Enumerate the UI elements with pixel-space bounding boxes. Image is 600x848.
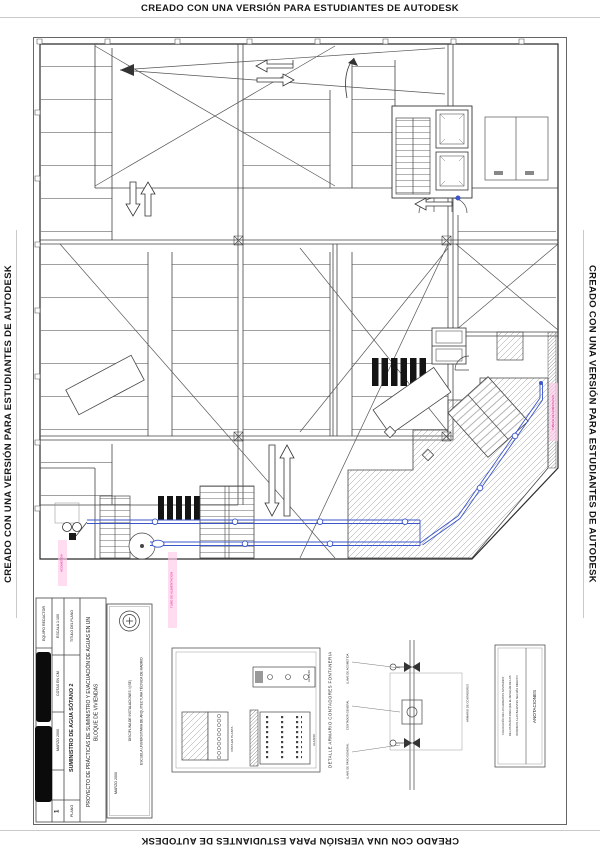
redacted-name xyxy=(35,726,52,802)
valvula-label-paso: LLAVE DE PASO GENERAL xyxy=(344,740,352,782)
leader-lines xyxy=(352,662,400,752)
valvula-label-acometida: LLAVE DE ACOMETIDA xyxy=(344,648,352,690)
redacted-name xyxy=(36,652,51,722)
escuela-nombre: ESCUELA UNIVERSITARIA DE ARQUITECTURA TÉ… xyxy=(136,608,147,814)
anotaciones-linea: INODOROS A LAS BAJANTES SEA MÁS DIRECTO xyxy=(514,652,521,760)
titulo-plano: SUMINISTRO DE AGUA SÓTANO 2 xyxy=(66,658,79,798)
fecha-value: MARZO 2000 xyxy=(53,714,63,767)
proyecto-titulo: PROYECTO DE PRÁCTICAS DE SUMINISTRO Y EV… xyxy=(82,610,105,815)
pipe-end xyxy=(539,381,543,385)
disciplina: DISCIPLINA DE INSTALACIONES I (ISE) xyxy=(125,608,135,814)
anotaciones-titulo: ANOTACIONES xyxy=(527,678,543,734)
detalle-titulo: DETALLE ARMARIO CONTADORES FONTANERIA xyxy=(324,645,336,775)
valve-schematic xyxy=(352,640,462,790)
riser-valve xyxy=(456,196,461,201)
titulo-plano-label: TITULO DEL PLANO xyxy=(65,600,79,653)
plano-label: PLANO xyxy=(65,802,79,820)
vista-planta-label: VISTA EN PLANTA xyxy=(229,716,237,762)
detail-armario-box xyxy=(172,648,320,772)
escala-value: ESCALA 1:100 xyxy=(53,600,63,653)
anotaciones-linea: COLOCACIÓN DE LOS APARATOS SANITARIOS xyxy=(500,652,507,760)
armario-contadores-label: ARMARIO DE CONTADORES xyxy=(464,678,472,728)
equipo-redactor-label: EQUIPO REDACTOR xyxy=(37,599,51,647)
pink-label-tuberia: TUBERIA DE ALIMENTACION xyxy=(549,383,558,441)
meter-symbol xyxy=(402,700,422,724)
floor-plan xyxy=(35,39,558,559)
pink-label-tubo-alimentacion: TUBO DE ALIMENTACION xyxy=(168,552,177,628)
valve-symbol-top xyxy=(390,662,420,672)
cotas-value: COTAS EN CM xyxy=(53,657,63,710)
alzado-label: ALZADO xyxy=(311,728,319,752)
alzado-label: ALZADO xyxy=(306,664,314,688)
anotaciones-linea: DE LOS BAÑOS PARA QUE EL DESAGÜE DE LOS xyxy=(507,652,514,760)
valvula-label-contador: CONTADOR GENERAL xyxy=(344,694,352,736)
plano-numero: 1 xyxy=(53,802,63,820)
valve-symbol-bottom xyxy=(390,738,420,748)
pink-label-acometida: ACOMETIDA xyxy=(58,540,67,586)
drawing-sheet: CREADO CON UNA VERSIÓN PARA ESTUDIANTES … xyxy=(0,0,600,848)
fecha-caja: MARZO 2000 xyxy=(111,752,121,814)
